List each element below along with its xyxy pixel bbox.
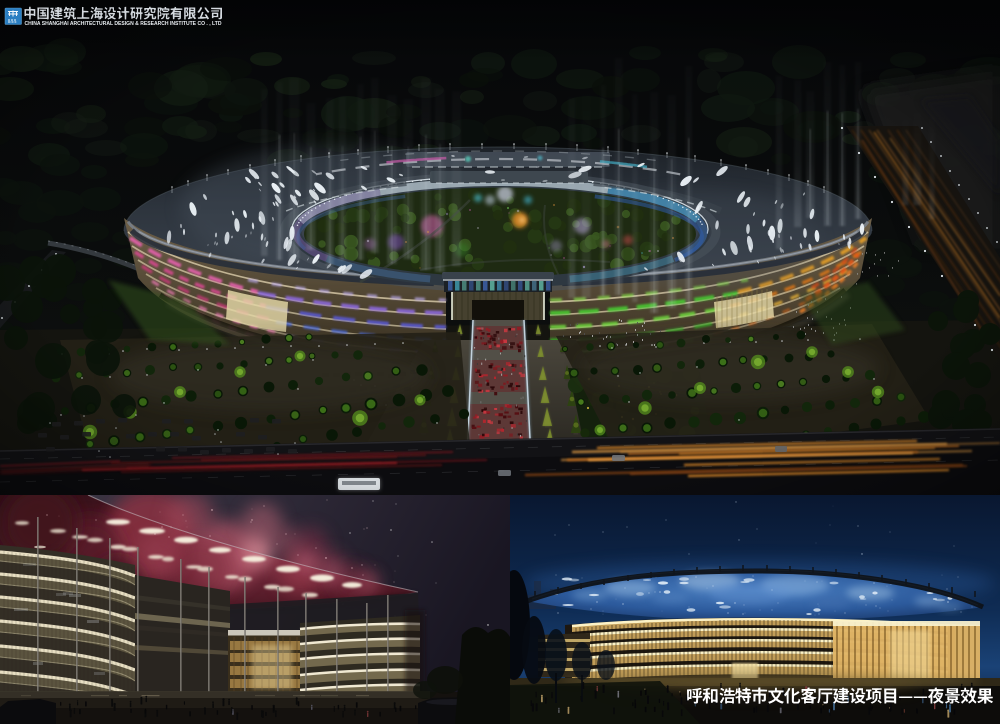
svg-text:CHINA SHANGHAI ARCHITECTURAL D: CHINA SHANGHAI ARCHITECTURAL DESIGN & RE… — [25, 21, 222, 27]
